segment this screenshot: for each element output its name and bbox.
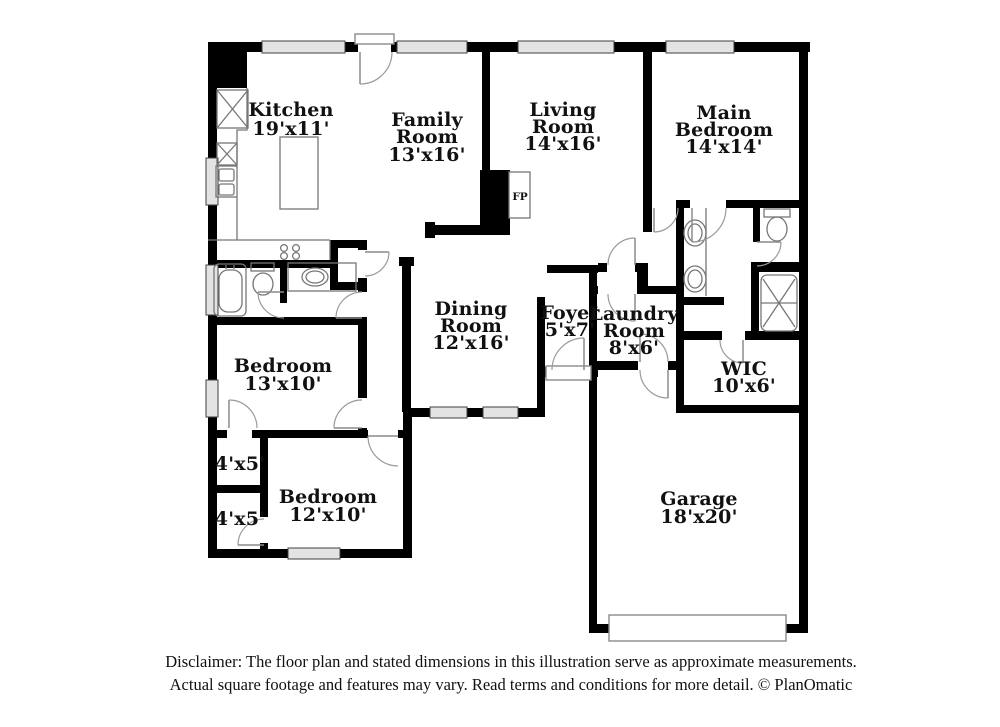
closet-bottom-dims: 4'x5'	[215, 508, 265, 530]
foyer-dims: 5'x7'	[545, 319, 595, 341]
shower	[761, 275, 797, 331]
closet-top-dims: 4'x5'	[215, 453, 265, 475]
back-door-threshold	[355, 34, 394, 44]
back-door	[360, 52, 392, 84]
kitchen-island	[280, 137, 318, 209]
living-room-dims: 14'x16'	[524, 133, 601, 155]
disclaimer-line-2: Actual square footage and features may v…	[22, 673, 1000, 696]
closet-top-door	[229, 400, 257, 428]
main-bedroom-dims: 14'x14'	[685, 136, 762, 158]
window	[483, 407, 518, 418]
disclaimer-line-1: Disclaimer: The floor plan and stated di…	[22, 650, 1000, 673]
main-bath-toilet	[764, 209, 790, 241]
stove-cooktop	[281, 245, 300, 260]
kitchen-dims: 19'x11'	[252, 118, 329, 140]
laundry-garage-door-b	[640, 370, 668, 398]
hall-bath-door	[336, 292, 362, 318]
dining-room-dims: 12'x16'	[432, 332, 509, 354]
bedroom-left-dims: 13'x10'	[244, 373, 321, 395]
wic-dims: 10'x6'	[712, 375, 776, 397]
window	[666, 41, 734, 53]
hall-entry-door	[608, 238, 635, 265]
window	[518, 41, 614, 53]
refrigerator	[217, 90, 248, 128]
pantry-cabinet	[217, 143, 237, 165]
window	[288, 548, 340, 559]
window	[206, 265, 218, 315]
disclaimer: Disclaimer: The floor plan and stated di…	[0, 650, 1000, 697]
garage-door	[609, 615, 786, 641]
bedroom-bottom-dims: 12'x10'	[289, 504, 366, 526]
room-labels-layer: Kitchen 19'x11' Family Room 13'x16' Livi…	[215, 99, 776, 530]
floor-plan-canvas: Kitchen 19'x11' Family Room 13'x16' Livi…	[0, 0, 1000, 727]
main-bath-vanity	[684, 208, 706, 296]
front-door	[552, 338, 584, 370]
window	[430, 407, 467, 418]
garage-dims: 18'x20'	[660, 506, 737, 528]
window	[262, 41, 345, 53]
fireplace-label: FP	[512, 191, 527, 203]
laundry-room-dims: 8'x6'	[609, 337, 659, 359]
hall-closet-door	[365, 252, 389, 276]
bathtub	[214, 264, 246, 316]
window	[206, 380, 218, 417]
kitchen-sink	[216, 166, 237, 197]
main-bedroom-door	[654, 208, 678, 232]
bedroom-left-door	[334, 400, 362, 428]
floor-plan: Kitchen 19'x11' Family Room 13'x16' Livi…	[0, 0, 1000, 727]
window	[397, 41, 467, 53]
family-room-dims: 13'x16'	[388, 144, 465, 166]
bedroom-bottom-door	[368, 436, 398, 466]
